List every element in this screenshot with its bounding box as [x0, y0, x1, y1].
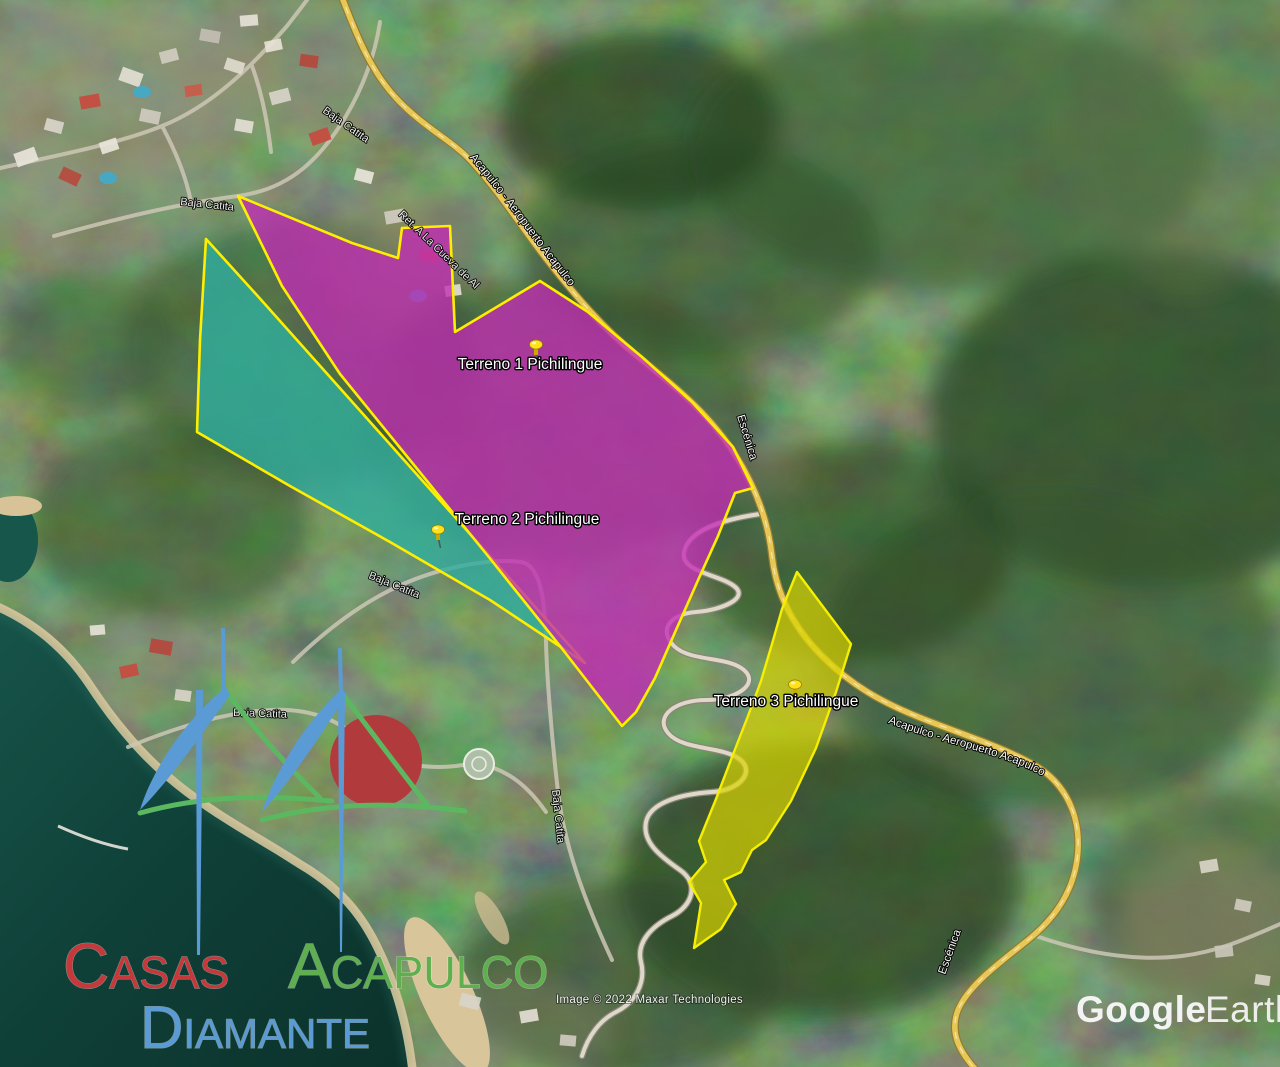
logo-word-diamante: Diamante — [140, 994, 370, 1061]
google-earth-logo-earth: Earth — [1205, 989, 1280, 1030]
google-earth-map-view: Acapulco - Aeropuerto Acapulco Acapulco … — [0, 0, 1280, 1067]
terreno-2-label: Terreno 2 Pichilingue — [455, 511, 600, 528]
satellite-map: Acapulco - Aeropuerto Acapulco Acapulco … — [0, 0, 1280, 1067]
google-earth-logo: Google Earth — [1076, 989, 1280, 1030]
terreno-3-label: Terreno 3 Pichilingue — [714, 693, 859, 710]
google-earth-logo-google: Google — [1076, 989, 1206, 1030]
helipad — [464, 749, 494, 779]
logo-word-casas: Casas — [63, 930, 229, 1002]
terreno-1-label: Terreno 1 Pichilingue — [458, 356, 603, 373]
imagery-attribution: Image © 2022 Maxar Technologies — [556, 994, 743, 1006]
logo-word-acapulco: Acapulco — [288, 930, 548, 1002]
